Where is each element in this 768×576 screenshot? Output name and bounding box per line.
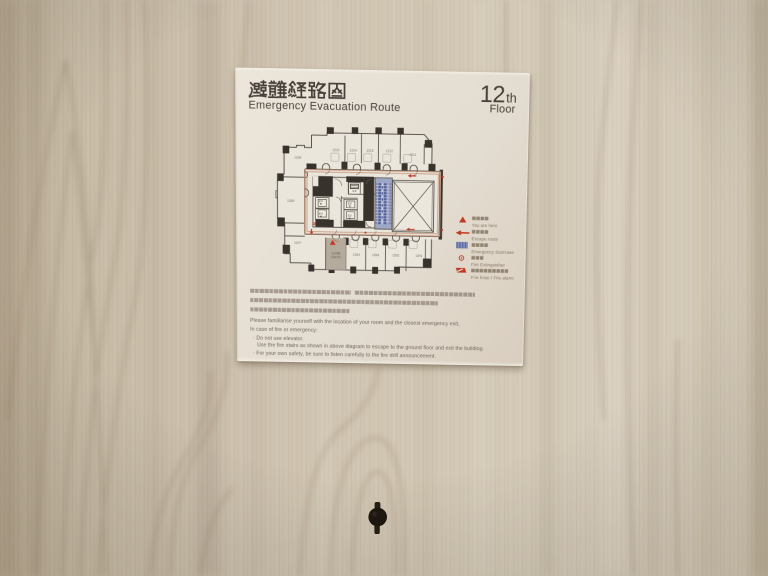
svg-text:Fire hose / Fire alarm: Fire hose / Fire alarm xyxy=(471,275,514,281)
svg-text:1201: 1201 xyxy=(415,254,422,258)
svg-text:· For your own safety, be sure: · For your own safety, be sure to listen… xyxy=(253,351,436,360)
svg-text:1203: 1203 xyxy=(372,253,379,257)
svg-text:Please familiarise yourself wi: Please familiarise yourself with the loc… xyxy=(250,318,460,327)
svg-text:1211: 1211 xyxy=(409,153,416,157)
svg-text:Fire Extinguisher: Fire Extinguisher xyxy=(471,262,505,267)
svg-text:Floor: Floor xyxy=(489,103,515,116)
svg-text:1213: 1213 xyxy=(366,149,373,153)
svg-text:1212: 1212 xyxy=(386,149,393,153)
svg-text:ICE: ICE xyxy=(352,189,357,193)
svg-text:1215: 1215 xyxy=(332,148,339,152)
svg-text:1207: 1207 xyxy=(294,241,301,245)
svg-text:1209: 1209 xyxy=(294,156,301,160)
svg-text:Emergency Staircase: Emergency Staircase xyxy=(471,249,514,255)
svg-text:In case of fire or emergency:: In case of fire or emergency: xyxy=(250,327,318,334)
svg-text:· Do not use elevator.: · Do not use elevator. xyxy=(253,336,304,343)
svg-text:1202: 1202 xyxy=(392,253,399,257)
svg-text:Emergency Evacuation Route: Emergency Evacuation Route xyxy=(248,99,400,114)
svg-text:Escape route: Escape route xyxy=(472,236,499,241)
svg-text:1204: 1204 xyxy=(353,253,360,257)
svg-text:1208: 1208 xyxy=(287,199,294,203)
svg-text:GW 05: GW 05 xyxy=(331,255,341,259)
svg-text:You are here: You are here xyxy=(472,223,498,228)
svg-text:1214: 1214 xyxy=(350,148,357,152)
